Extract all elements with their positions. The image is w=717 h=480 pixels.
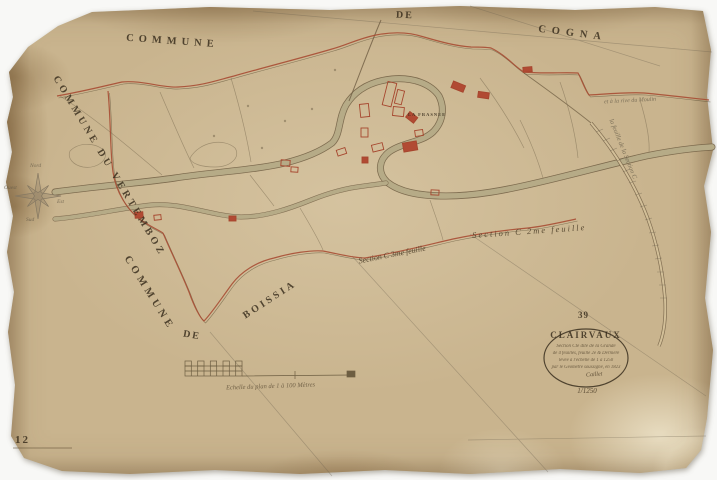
cartouche-line-2: de 4 feuilles, feuille 2e & Dernière xyxy=(544,351,628,356)
building xyxy=(394,89,404,104)
survey-pencil-lines xyxy=(210,6,712,476)
building xyxy=(523,67,532,73)
map-linework xyxy=(0,0,717,480)
cartouche-scale-fraction: 1/1250 xyxy=(570,387,604,395)
parcel-line xyxy=(640,100,649,152)
scale-baseline xyxy=(242,371,352,379)
pencil-line xyxy=(253,11,712,52)
cartouche-plate-number: 39 xyxy=(578,310,589,320)
building xyxy=(291,167,298,172)
parcel-line xyxy=(560,82,578,158)
pencil-line xyxy=(352,256,548,472)
label-de-top: DE xyxy=(396,10,414,22)
building xyxy=(478,91,490,98)
cartouche-signature: Caillet xyxy=(586,371,603,378)
scale-comb-top xyxy=(223,361,229,366)
compass-label-west: Ouest xyxy=(4,185,17,191)
pencil-line xyxy=(468,436,706,440)
building xyxy=(229,216,236,221)
cartouche-line-1: Section Cte dite de la Grande xyxy=(544,344,628,349)
label-village: LA FRASNEE xyxy=(408,112,446,117)
parcel-line xyxy=(231,78,251,162)
scale-comb-top xyxy=(198,361,204,366)
building xyxy=(451,81,466,92)
roads xyxy=(349,20,665,346)
cartouche-line-3: levée à l'échelle de 1 à 1250 xyxy=(544,358,628,363)
building xyxy=(154,215,161,221)
tree-dot xyxy=(261,147,263,149)
compass-label-east: Est xyxy=(57,199,64,205)
tree-dot xyxy=(213,135,215,137)
parcel-line xyxy=(160,92,194,168)
sheet-number: 12 xyxy=(15,434,30,446)
parcel-line xyxy=(300,208,323,250)
tree-dot xyxy=(311,108,313,110)
parcel-line xyxy=(480,78,524,148)
parcel-line xyxy=(250,175,274,206)
parcel-outline xyxy=(190,142,237,167)
scale-end-block xyxy=(347,371,355,377)
tree-dot xyxy=(284,120,286,122)
scale-comb-divisions xyxy=(185,366,242,376)
parcel-line xyxy=(430,200,443,240)
tree-dot xyxy=(334,69,336,71)
scale-bar xyxy=(185,361,355,379)
building xyxy=(361,128,368,137)
parcel-line xyxy=(520,120,543,178)
cartouche-title: CLAIRVAUX xyxy=(546,330,626,340)
building xyxy=(362,157,368,163)
building xyxy=(371,143,383,152)
scale-comb-top xyxy=(210,361,216,366)
scale-comb-top xyxy=(185,361,191,366)
scanned-map-page: COMMUNE DE COGNA COMMUNE DU VERTEMBOZ CO… xyxy=(0,0,717,480)
compass-label-north: Nord xyxy=(30,163,41,169)
building xyxy=(393,106,405,116)
building xyxy=(336,148,346,156)
building xyxy=(402,141,417,152)
compass-rose-icon xyxy=(15,173,61,219)
pencil-line xyxy=(210,332,332,476)
compass-label-south: Sud xyxy=(26,217,34,223)
tree-dot xyxy=(247,105,249,107)
building xyxy=(359,104,369,118)
cartouche-line-4: par le Géomètre soussigné, en 1823 xyxy=(544,365,628,370)
building xyxy=(415,129,424,136)
